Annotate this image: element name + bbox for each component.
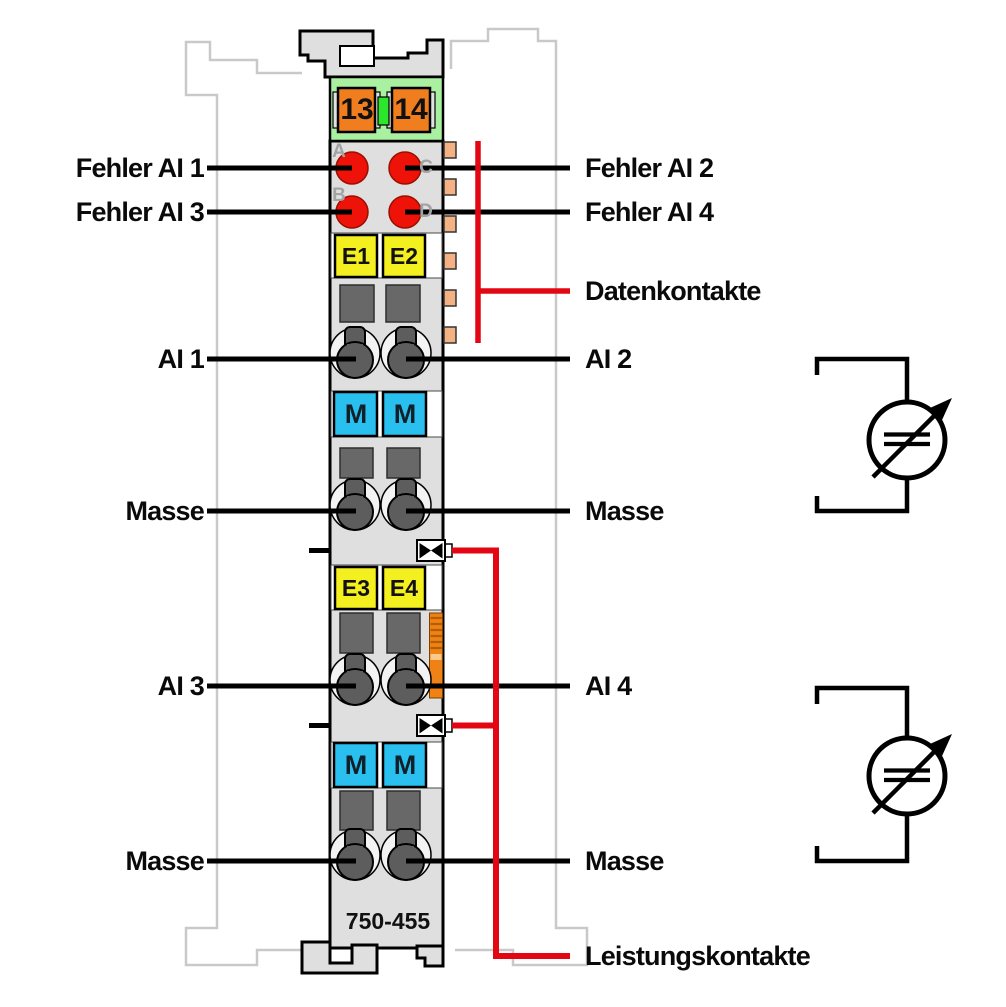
data-contact-tab-icon bbox=[444, 216, 456, 232]
data-contact-tab-icon bbox=[444, 327, 456, 343]
led-label-c: C bbox=[416, 158, 436, 178]
marker-e2-label: E2 bbox=[384, 241, 424, 271]
component-square bbox=[387, 791, 420, 830]
label-fehler-ai-4: Fehler AI 4 bbox=[585, 195, 713, 229]
leistungskontakte-pointer-line bbox=[452, 551, 570, 957]
label-leistungskontakte: Leistungskontakte bbox=[585, 939, 810, 973]
component-square bbox=[340, 448, 373, 478]
component-square bbox=[386, 285, 420, 322]
power-terminal-14-label: 14 bbox=[388, 93, 434, 127]
label-masse-left-2: Masse bbox=[4, 844, 204, 878]
marker-m1-label: M bbox=[335, 398, 377, 430]
adjustable-dc-source-icon bbox=[817, 688, 952, 861]
bottom-foot-right bbox=[417, 946, 443, 966]
marker-e1-label: E1 bbox=[336, 241, 376, 271]
component-square bbox=[340, 791, 373, 830]
component-square bbox=[340, 613, 373, 653]
label-ai-4: AI 4 bbox=[585, 669, 631, 703]
data-contact-tab-icon bbox=[444, 142, 456, 158]
data-contact-tabs bbox=[444, 142, 456, 343]
component-square bbox=[387, 613, 420, 653]
label-ai-1: AI 1 bbox=[4, 342, 204, 376]
part-number: 750-455 bbox=[333, 908, 443, 934]
hook-notch bbox=[340, 46, 374, 66]
data-contact-tab-icon bbox=[444, 253, 456, 269]
wiring-diagram: Fehler AI 1 Fehler AI 3 AI 1 Masse AI 3 … bbox=[0, 0, 1006, 1007]
adjustable-dc-source-icon bbox=[817, 359, 952, 511]
label-fehler-ai-3: Fehler AI 3 bbox=[4, 195, 204, 229]
led-label-a: A bbox=[329, 142, 349, 162]
label-masse-left-1: Masse bbox=[4, 494, 204, 528]
label-ai-3: AI 3 bbox=[4, 669, 204, 703]
data-contact-tab-icon bbox=[444, 290, 456, 306]
component-square bbox=[387, 448, 420, 478]
marker-m4-label: M bbox=[384, 749, 426, 781]
label-masse-right-1: Masse bbox=[585, 494, 664, 528]
label-masse-right-2: Masse bbox=[585, 844, 664, 878]
marker-e4-label: E4 bbox=[384, 573, 424, 603]
power-jumper-contact-icon bbox=[417, 715, 452, 736]
marker-e3-label: E3 bbox=[336, 573, 376, 603]
power-terminal-13-label: 13 bbox=[334, 93, 380, 127]
label-fehler-ai-2: Fehler AI 2 bbox=[585, 151, 713, 185]
led-label-d: D bbox=[416, 202, 436, 222]
label-fehler-ai-1: Fehler AI 1 bbox=[4, 151, 204, 185]
data-contact-tab-icon bbox=[444, 179, 456, 195]
component-square bbox=[340, 285, 374, 322]
label-datenkontakte: Datenkontakte bbox=[585, 274, 761, 308]
power-jumper-contact-icon bbox=[417, 540, 452, 561]
marker-m2-label: M bbox=[384, 398, 426, 430]
marker-m3-label: M bbox=[335, 749, 377, 781]
led-label-b: B bbox=[329, 186, 349, 206]
label-ai-2: AI 2 bbox=[585, 342, 631, 376]
